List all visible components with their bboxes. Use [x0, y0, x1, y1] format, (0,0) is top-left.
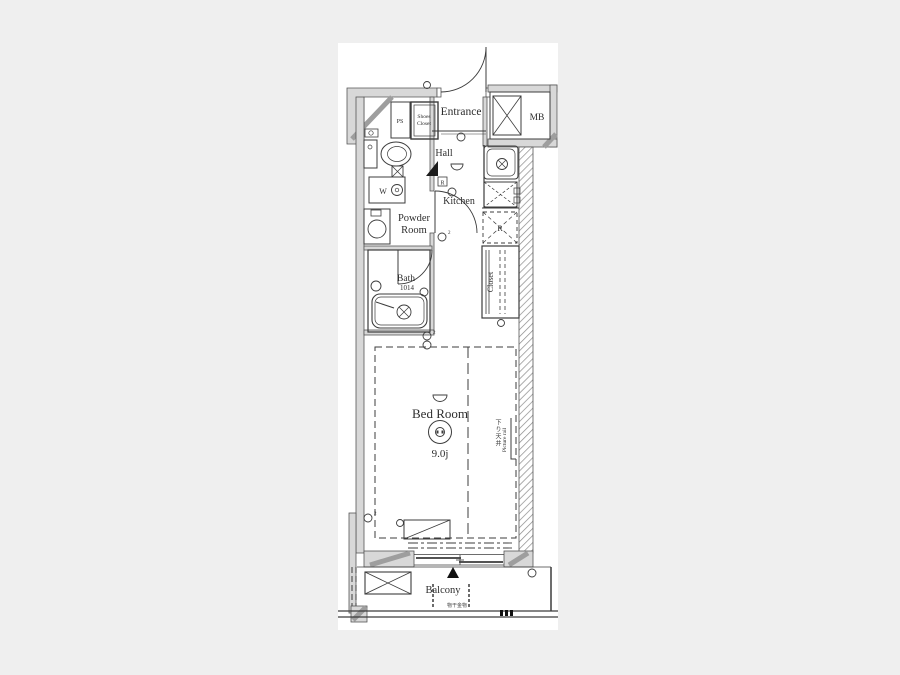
ceiling-rose-pin-2 [442, 431, 444, 434]
bath-label: Bath [397, 274, 415, 284]
hall-label: Hall [435, 148, 452, 159]
railing-tick-2 [505, 610, 508, 616]
powder-room-label-1: Powder [398, 213, 431, 224]
railing-tick-3 [510, 610, 513, 616]
shoes-closet-label-2: Closet [417, 121, 432, 127]
mb-label: MB [530, 113, 545, 123]
balcony-label: Balcony [426, 585, 462, 596]
washer-label: W [379, 187, 387, 196]
bedroom-size-label: 9.0j [432, 448, 449, 460]
shoes-closet-label-1: Shoes [417, 114, 430, 120]
floorplan-image: Entrance Hall Kitchen Powder Room Bath 1… [0, 0, 900, 675]
wall-hall-powder-upper [430, 97, 434, 191]
railing-tick-1 [500, 610, 503, 616]
entrance-jamb-left [437, 88, 441, 97]
powder-room-label-2: Room [401, 225, 427, 236]
wall-right-hatched [519, 147, 533, 553]
ps-label: PS [397, 119, 404, 125]
closet-label: Closet [486, 271, 495, 292]
lowered-ceiling-label: 下り天井 [493, 419, 502, 447]
ceiling-rose-pin-1 [437, 431, 439, 434]
floorplan-drawing: Entrance Hall Kitchen Powder Room Bath 1… [0, 0, 900, 675]
wall-panel-label: R [440, 181, 444, 187]
bath-size-label: 1014 [400, 284, 415, 292]
kitchen-label: Kitchen [443, 196, 475, 207]
picture-rail-label: Picture rail [502, 427, 508, 452]
bedroom-label: Bed Room [412, 406, 468, 421]
entrance-label: Entrance [441, 106, 482, 118]
wall-powder-bath [364, 246, 432, 250]
wall-mb-top [488, 85, 557, 92]
fridge-label: R [497, 224, 503, 233]
wall-entrance-kitchen [483, 97, 487, 146]
laundry-hardware-label: 物干金物 [447, 602, 467, 609]
wall-left [356, 97, 364, 553]
